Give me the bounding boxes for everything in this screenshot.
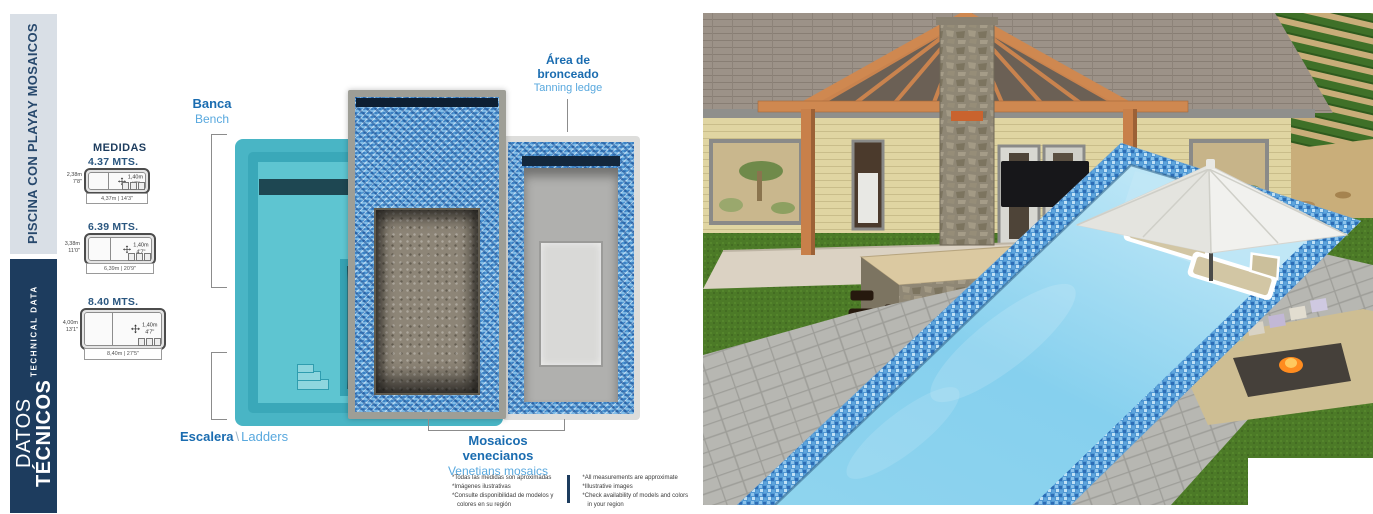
model3-title: 8.40 MTS. — [88, 296, 138, 308]
tanning-leader-line — [567, 99, 568, 132]
steps-glyph — [122, 182, 145, 190]
technical-data-text: DATOS TÉCNICOS TECHNICAL DATA — [14, 259, 54, 513]
ledge-divider-line — [108, 173, 109, 189]
model1-width-dim: 2,38m 7'8" — [62, 172, 82, 186]
depth-arrows-icon — [123, 245, 131, 253]
depth-arrows-icon — [131, 325, 140, 334]
model1-title: 4.37 MTS. — [88, 156, 138, 168]
callout-escalera: Escalera\Ladders — [180, 428, 320, 446]
escalera-bracket — [211, 352, 227, 420]
model2-schematic: 1,40m 4'7" — [84, 233, 156, 265]
steps-glyph — [128, 253, 151, 261]
callout-tanning-ledge: Área de bronceado Tanning ledge — [518, 54, 618, 95]
footnote-divider — [567, 475, 570, 503]
side-door — [853, 141, 883, 229]
model3-depth: 1,40m 4'7" — [131, 322, 157, 335]
footnotes: *Todas las medidas son aproximadas *Imág… — [452, 474, 688, 510]
sidebar-technical-data: DATOS TÉCNICOS TECHNICAL DATA — [10, 259, 57, 513]
model1-schematic: 1,40m 4'7" — [84, 168, 150, 194]
model2-width-dim: 3,38m 11'0" — [60, 241, 80, 255]
ledge-divider-line — [112, 313, 113, 345]
page-cutout — [1248, 458, 1373, 505]
pool-render-photo — [703, 13, 1373, 505]
model1-length: 4,37m | 14'3" — [86, 193, 148, 204]
model3-schematic: 1,40m 4'7" — [80, 308, 166, 350]
ledge-divider-line — [110, 238, 111, 260]
technical-data-label: TECHNICAL DATA — [29, 285, 38, 377]
depth-text: 1,40m 4'7" — [142, 322, 157, 335]
model2-length: 6,39m | 20'9" — [86, 263, 154, 274]
datos-tecnicos-label: DATOS TÉCNICOS — [14, 379, 54, 486]
banca-bracket — [211, 134, 227, 288]
chimney — [936, 17, 998, 245]
mosaicos-bracket — [428, 419, 565, 431]
pool-topview-mosaic — [348, 90, 506, 419]
model2-title: 6.39 MTS. — [88, 221, 138, 233]
medidas-heading: MEDIDAS — [93, 142, 147, 154]
product-title-line2: Y MOSAICOS — [25, 24, 42, 110]
callout-banca: Banca Bench — [176, 97, 248, 126]
model3-length: 8,40m | 27'5" — [84, 348, 162, 360]
granite-floor — [374, 208, 480, 395]
model3-width-dim: 4,00m 13'1" — [58, 320, 78, 334]
footnotes-spanish: *Todas las medidas son aproximadas *Imág… — [452, 474, 553, 510]
step — [297, 364, 314, 373]
pool-topview-gray — [502, 136, 640, 420]
product-title-line1: PISCINA CON PLAYA — [25, 109, 42, 244]
backyard-pool-illustration — [703, 13, 1373, 505]
brochure-page: PISCINA CON PLAYA Y MOSAICOS DATOS TÉCNI… — [0, 0, 1373, 514]
product-title-text: PISCINA CON PLAYA Y MOSAICOS — [25, 14, 42, 254]
sidebar-product-title: PISCINA CON PLAYA Y MOSAICOS — [10, 14, 57, 254]
steps-glyph — [138, 338, 161, 346]
callout-mosaicos: Mosaicos venecianos Venetians mosaics — [447, 434, 549, 478]
window-left — [711, 141, 801, 223]
footnotes-english: *All measurements are approximate *Illus… — [582, 474, 688, 510]
